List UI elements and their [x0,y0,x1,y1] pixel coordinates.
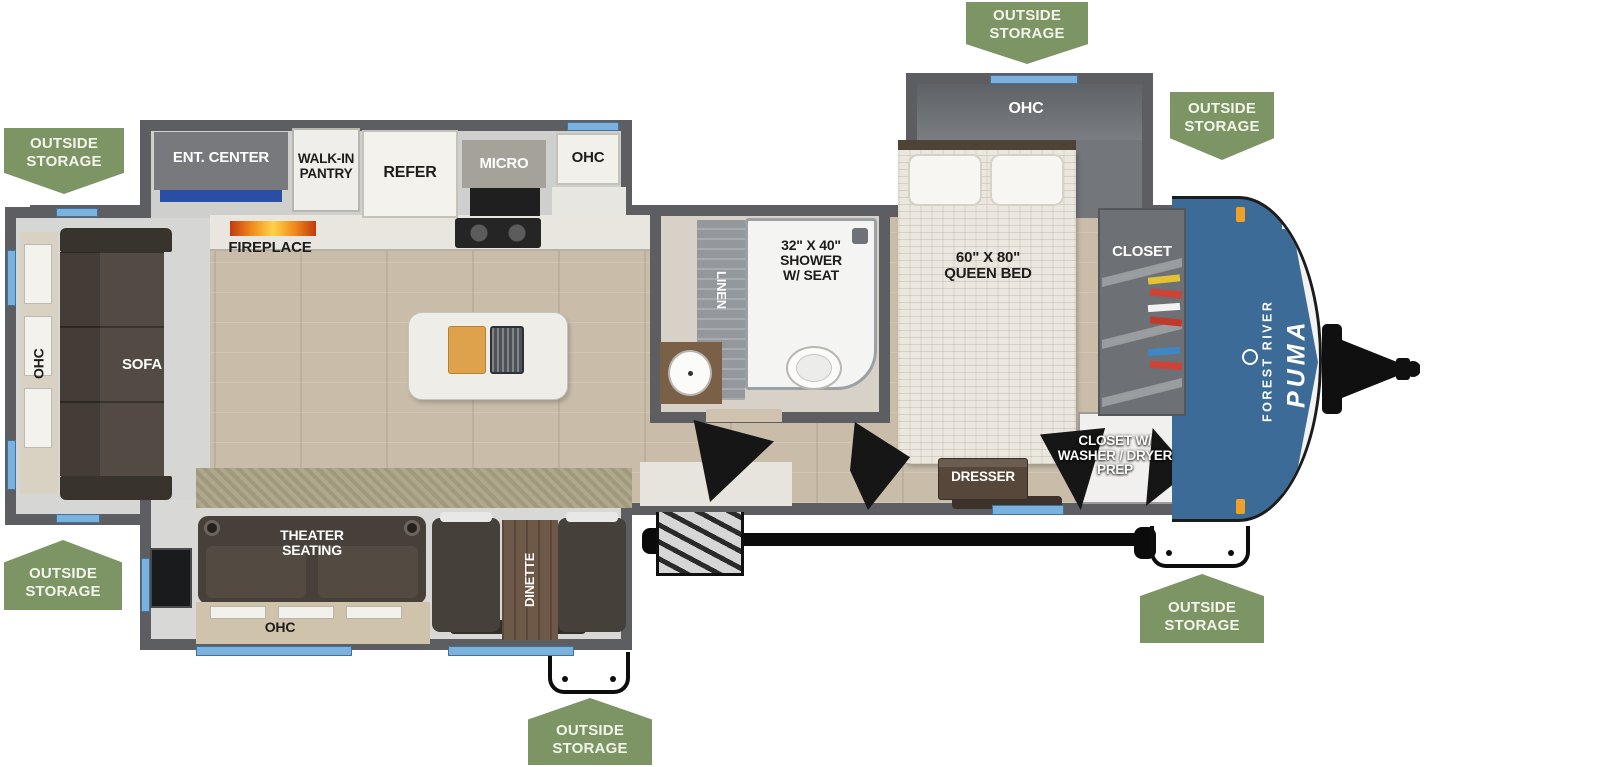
theater-seating-label: THEATER SEATING [252,528,372,558]
outside-storage-badge: OUTSIDE STORAGE [4,540,122,610]
closet-label: CLOSET [1104,244,1180,260]
window [56,514,100,523]
latch-dot [1166,550,1172,556]
floorplan-canvas: FIREPLACE OHC SOFA ENT. CENTER WALK-IN P… [0,0,1600,767]
latch-dot [1228,550,1234,556]
fireplace-flame [230,221,316,236]
dinette-bench [558,518,626,632]
storage-compartment-outline [1150,526,1250,568]
sofa-label: SOFA [112,357,172,373]
rear-ohc-door [24,244,52,304]
living-area-rug [196,468,632,508]
window [990,75,1078,84]
bed-pillow [908,154,982,206]
puma-wordmark: PUMA [1280,285,1314,441]
bottom-ohc-door [210,606,266,619]
oven-front [470,188,540,216]
cupholder [204,520,220,536]
dinette-label: DINETTE [506,538,554,622]
rear-ohc-door [24,388,52,448]
clearance-light [1236,499,1245,514]
bottom-ohc-label: OHC [230,620,330,635]
forest-river-wordmark: FOREST RIVER [1256,261,1280,461]
latch-dot [610,676,616,682]
sofa-armrest [60,228,172,252]
dresser-label: DRESSER [938,470,1028,485]
micro-label: MICRO [466,156,542,172]
clearance-light [1236,207,1245,222]
bottom-ohc-door [346,606,402,619]
sofa-backrest [60,252,100,476]
window [992,505,1064,515]
storage-compartment-outline [548,652,630,694]
outside-storage-badge: OUTSIDE STORAGE [1140,574,1264,643]
front-cap: FOREST RIVER PUMA [1172,196,1322,522]
refer-label: REFER [364,164,456,181]
sofa-armrest [60,476,172,500]
outside-storage-badge: OUTSIDE STORAGE [966,2,1088,64]
tv-strip [160,190,282,202]
tv-screen [150,548,192,608]
sink-drain [688,371,693,376]
outside-storage-badge: OUTSIDE STORAGE [528,698,652,765]
entry-steps [656,512,744,576]
toilet-seat [796,354,832,382]
window [7,440,16,490]
linen-label: LINEN [700,258,742,322]
window [196,646,352,656]
cooktop-stove [455,218,541,248]
outside-storage-badge: OUTSIDE STORAGE [4,128,124,194]
kitchen-ohc-label: OHC [558,150,618,166]
window [56,208,98,217]
window [7,250,16,306]
window [141,558,150,612]
shower-label: 32" X 40" SHOWER W/ SEAT [752,238,870,283]
walk-in-pantry-label: WALK-IN PANTRY [290,152,362,181]
bathroom-door-gap [706,409,782,422]
hitch-a-frame [1316,314,1420,424]
window [567,122,619,131]
bedroom-ohc-label: OHC [986,100,1066,117]
bench-headrest [440,512,492,522]
washer-dryer-label: CLOSET W/ WASHER / DRYER PREP [1040,434,1190,478]
dinette-bench [432,518,500,632]
ent-center-label: ENT. CENTER [158,150,284,166]
cupholder [404,520,420,536]
window [448,646,574,656]
outside-storage-badge: OUTSIDE STORAGE [1170,92,1274,160]
rear-ohc-label: OHC [20,336,58,392]
bed-pillow [990,154,1064,206]
latch-dot [562,676,568,682]
bottom-ohc-door [278,606,334,619]
fireplace-label: FIREPLACE [214,240,326,256]
kitchen-end-counter [552,187,626,216]
cutting-board [448,326,486,374]
island-sink [490,326,524,374]
queen-bed-label: 60" X 80" QUEEN BED [918,250,1058,282]
kitchen-island [408,312,568,400]
bench-headrest [566,512,618,522]
